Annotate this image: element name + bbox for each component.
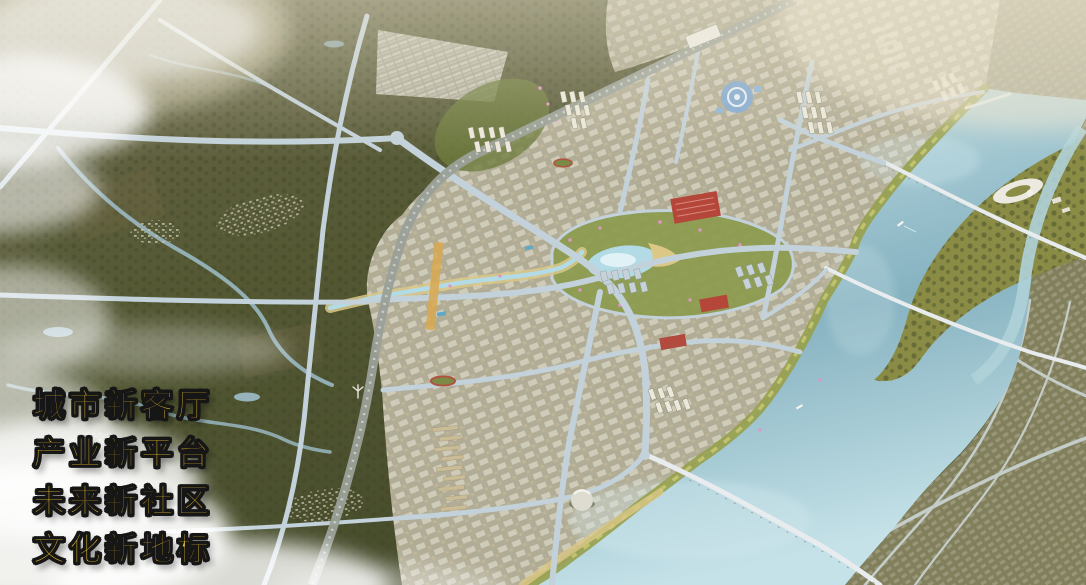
slogan-line-2: 产业新平台 <box>33 429 213 477</box>
slogan-line-1: 城市新客厅 <box>33 381 213 429</box>
aerial-masterplan-rendering: 城市新客厅 产业新平台 未来新社区 文化新地标 <box>0 0 1086 585</box>
slogan-line-3: 未来新社区 <box>33 477 213 525</box>
slogan-line-4: 文化新地标 <box>33 525 213 573</box>
slogan-text-block: 城市新客厅 产业新平台 未来新社区 文化新地标 <box>33 381 213 573</box>
